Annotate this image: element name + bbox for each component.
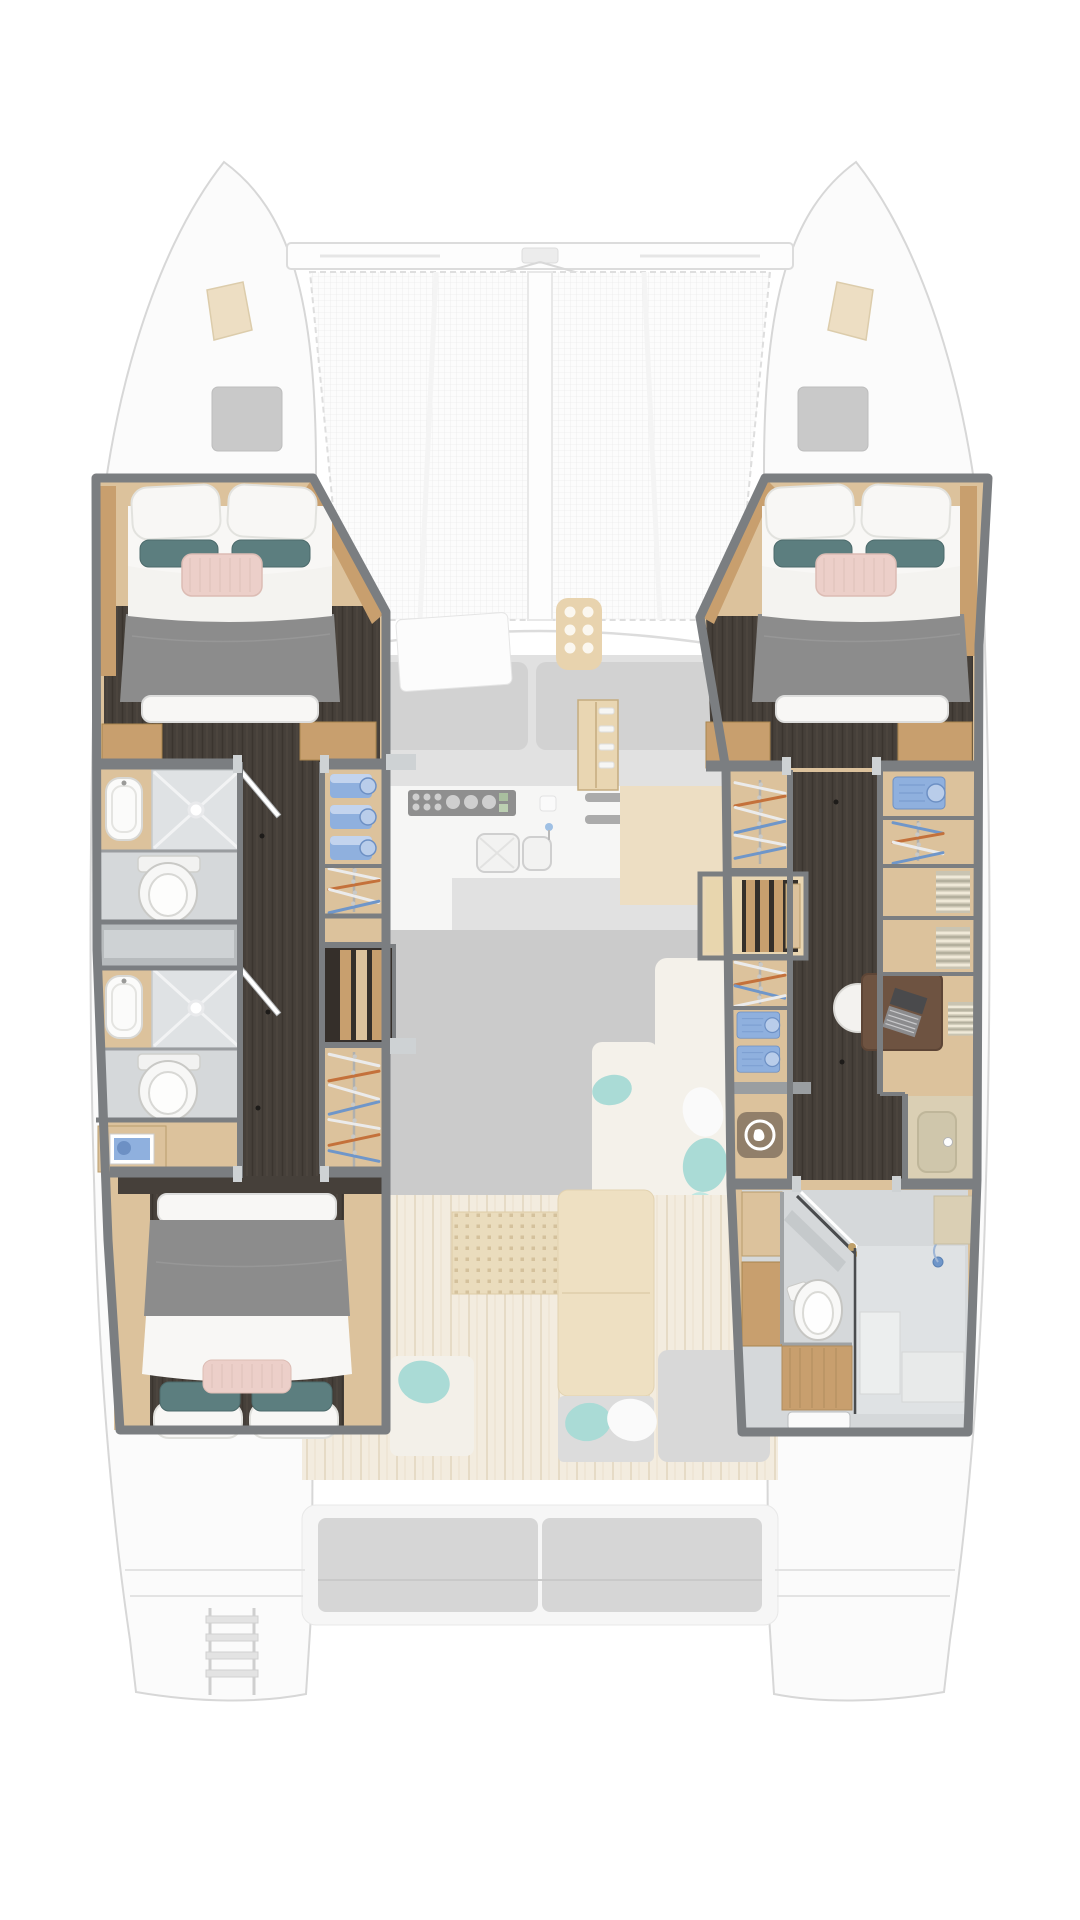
folded-shirt [893, 777, 945, 809]
starboard-vanity [905, 1096, 978, 1180]
galley-cooktop [408, 790, 516, 816]
floor-plan-page [0, 0, 1080, 1920]
pillow-white [765, 484, 856, 541]
washing-machine-icon [737, 1112, 783, 1158]
mixer-tap-icon [944, 1138, 953, 1147]
center-beam [528, 272, 552, 620]
double-berth [120, 484, 340, 722]
washing-machine-locker [731, 1096, 790, 1180]
hanging-locker [880, 817, 978, 865]
anchor-locker-lid-port [207, 282, 252, 340]
port-aft-cabin [114, 1176, 384, 1438]
perforated-mat [452, 1212, 564, 1294]
double-berth [752, 484, 970, 722]
foot-runner-gray [752, 614, 970, 702]
pillow-white [131, 484, 222, 541]
trampoline-net [310, 272, 770, 620]
hanging-locker-forward [322, 863, 386, 915]
anchor-locker-lid-starboard [828, 282, 873, 340]
forward-hatch [396, 612, 513, 692]
starboard-dressing-outboard [880, 772, 978, 974]
starboard-hull-interior [700, 478, 988, 1432]
catamaran-floor-plan [0, 0, 1080, 1920]
hanging-locker-aft [322, 1048, 386, 1172]
shower-cabin [855, 1240, 965, 1414]
aft-sofa [302, 1505, 778, 1625]
towel-stack [330, 836, 376, 860]
towel-stack [330, 774, 376, 798]
towel-stack [330, 805, 376, 829]
linen-shelf [936, 871, 970, 913]
starboard-aft-bathroom [742, 1190, 978, 1432]
cushion-blush [203, 1360, 291, 1393]
deck-hatch-port [212, 387, 282, 451]
pillow-white [227, 484, 318, 541]
control-panel [556, 598, 602, 670]
port-hull-interior [96, 478, 416, 1438]
linen-shelf [948, 1002, 975, 1036]
deck-hatch-starboard [798, 387, 868, 451]
entry-step [788, 1412, 850, 1430]
pillow-white [861, 484, 952, 541]
teak-mat [782, 1346, 852, 1410]
port-corridor [240, 762, 322, 1176]
linen-shelf [936, 927, 970, 969]
foot-runner-gray [120, 614, 340, 702]
hull-steps-cabinet [578, 700, 618, 790]
